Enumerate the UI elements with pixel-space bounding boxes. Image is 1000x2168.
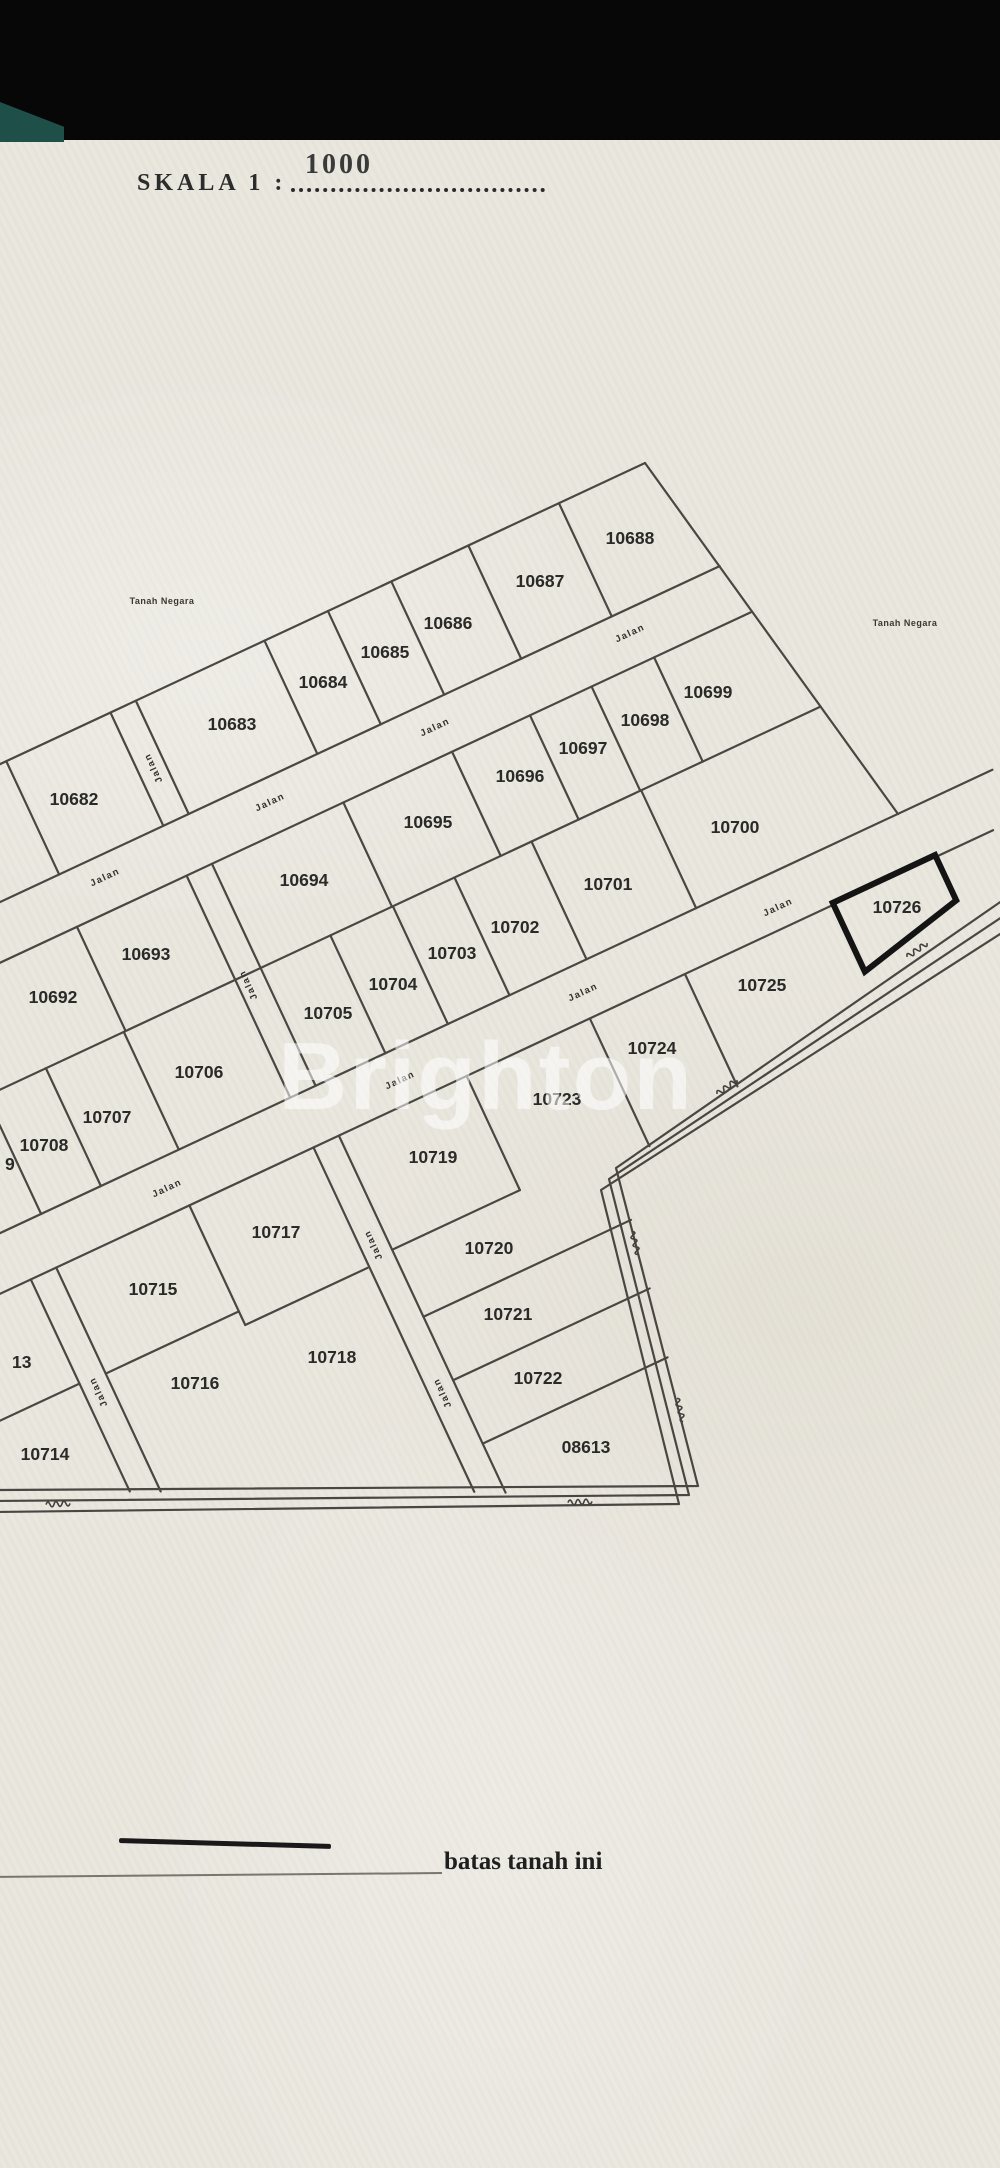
road-label: Jalan (87, 1375, 110, 1408)
road-label: Jalan (88, 866, 121, 889)
parcel-label: 10705 (304, 1003, 353, 1023)
parcel-label-partial: 9 (5, 1154, 15, 1174)
parcel-label: 10686 (424, 613, 473, 633)
parcel-label: 10683 (208, 714, 257, 734)
parcel-label: 10708 (20, 1135, 69, 1155)
parcel-label: 10721 (484, 1304, 533, 1324)
parcel-label-partial: 13 (12, 1352, 32, 1372)
parcel-labels: 1068210683106841068510686106871068810692… (5, 528, 922, 1464)
parcel-label: 10700 (711, 817, 760, 837)
road-label: Jalan (761, 896, 794, 919)
parcel-label: 10703 (428, 943, 477, 963)
parcel-label: 10687 (516, 571, 565, 591)
parcel-label: 10719 (409, 1147, 458, 1167)
parcel-label: 10722 (514, 1368, 563, 1388)
scanned-cadastral-document: SKALA 1 : 1000 1068210683106841068510686… (0, 0, 1000, 2168)
parcel-label: 10714 (21, 1444, 70, 1464)
land-note-label: Tanah Negara (130, 596, 195, 606)
parcel-label: 10720 (465, 1238, 514, 1258)
parcel-label: 10707 (83, 1107, 132, 1127)
road-label: Jalan (237, 968, 260, 1001)
parcel-label: 10684 (299, 672, 348, 692)
road-name-mark (46, 1501, 70, 1507)
parcel-label: 10694 (280, 870, 329, 890)
road-label: Jalan (613, 622, 646, 645)
parcel-label: 10688 (606, 528, 655, 548)
parcel-label: 10697 (559, 738, 608, 758)
road-name-mark (629, 1231, 640, 1255)
parcel-label: 08613 (562, 1437, 611, 1457)
parcel-label: 10693 (122, 944, 171, 964)
parcel-label: 10692 (29, 987, 78, 1007)
parcel-label: 10724 (628, 1038, 677, 1058)
parcel-label: 10685 (361, 642, 410, 662)
parcel-label: 10682 (50, 789, 99, 809)
parcel-label: 10723 (533, 1089, 582, 1109)
parcel-label: 10704 (369, 974, 418, 994)
parcel-label: 10701 (584, 874, 633, 894)
road-label: Jalan (253, 791, 286, 814)
parcel-label: 10718 (308, 1347, 357, 1367)
parcel-label: 10698 (621, 710, 670, 730)
legend-label: batas tanah ini (444, 1848, 602, 1876)
road-label: Jalan (150, 1177, 183, 1200)
road-label: Jalan (383, 1069, 416, 1092)
parcel-label: 10699 (684, 682, 733, 702)
road-name-mark (906, 941, 929, 959)
parcel-label: 10725 (738, 975, 787, 995)
parcel-label: 10717 (252, 1222, 301, 1242)
parcel-label: 10695 (404, 812, 453, 832)
parcel-label: 10706 (175, 1062, 224, 1082)
parcel-label: 10715 (129, 1279, 178, 1299)
parcel-boundary-lines (0, 463, 1000, 1512)
road-label: Jalan (566, 981, 599, 1004)
road-label: Jalan (418, 716, 451, 739)
parcel-label: 10702 (491, 917, 540, 937)
land-note-label: Tanah Negara (873, 618, 938, 628)
parcel-label: 10716 (171, 1373, 220, 1393)
parcel-label: 10696 (496, 766, 545, 786)
parcel-label: 10726 (873, 897, 922, 917)
road-labels: JalanJalanJalanJalanJalanJalanJalanJalan… (87, 622, 795, 1410)
